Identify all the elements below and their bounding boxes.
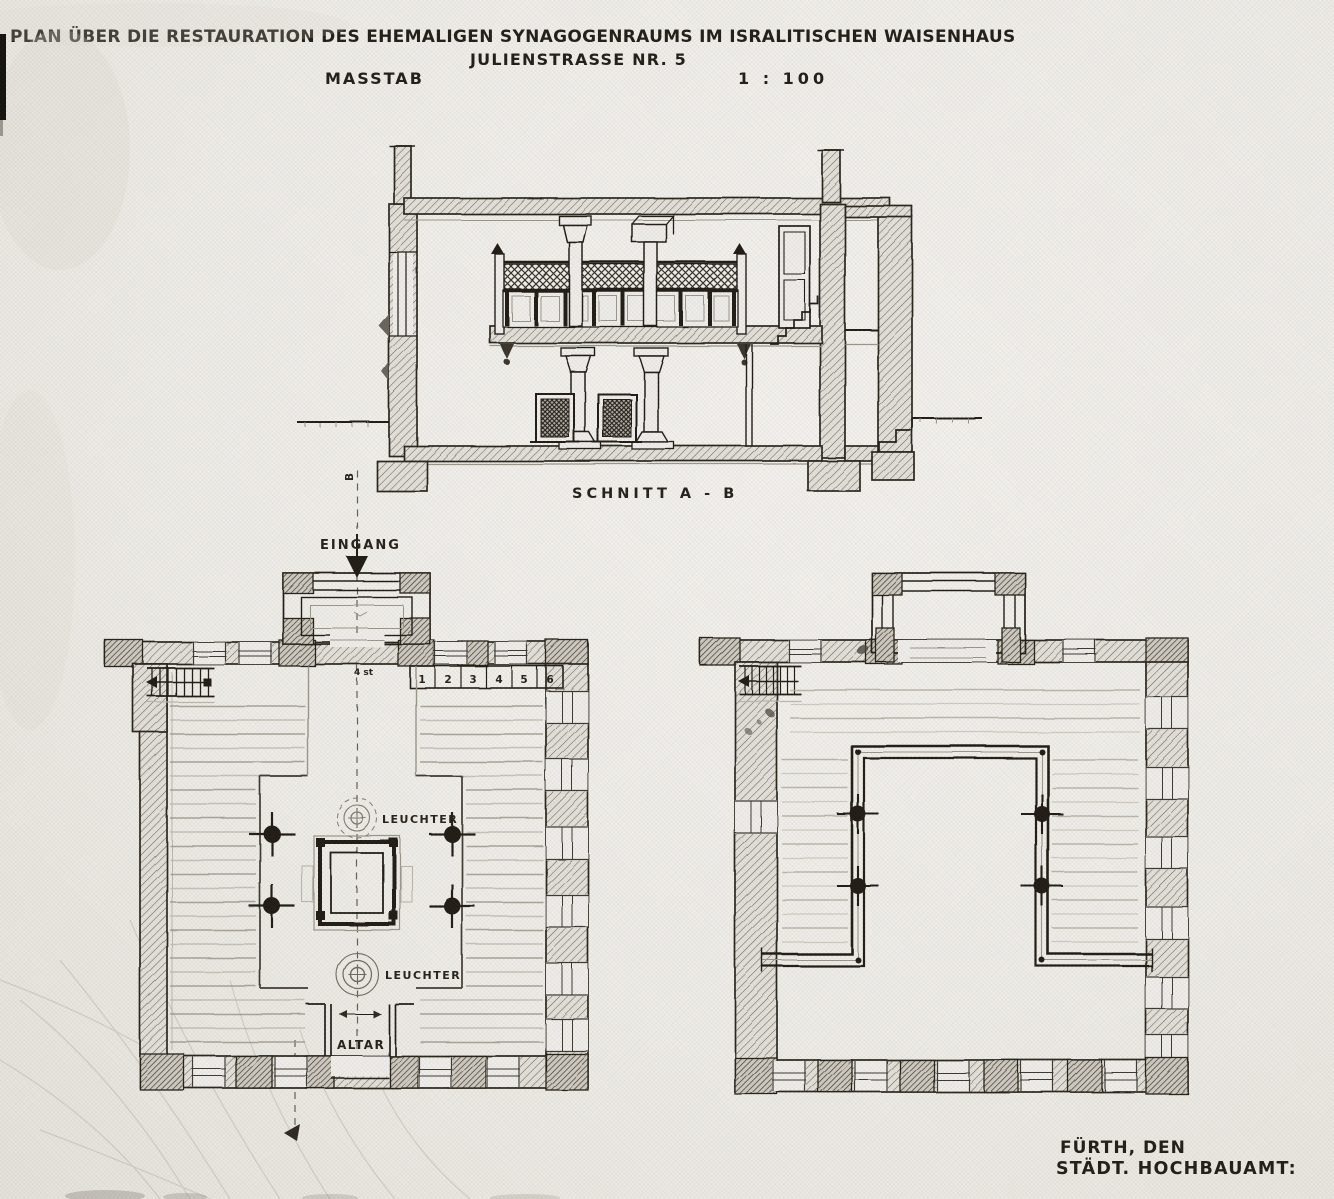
seat-number-1: 1 — [418, 674, 425, 686]
footer-office: STÄDT. HOCHBAUAMT: — [1056, 1159, 1297, 1179]
gf-columns — [249, 812, 475, 928]
gal-west-wall — [735, 662, 777, 1060]
vestibule-steps-note: 4 st — [354, 668, 374, 678]
gal-columns — [837, 794, 1063, 906]
seat-number-6: 6 — [546, 674, 553, 686]
section-drawing — [297, 146, 982, 491]
gallery-floor-plan — [700, 573, 1188, 1094]
footer-city-date: FÜRTH, DEN — [1060, 1138, 1186, 1158]
gallery-railing — [762, 746, 1152, 972]
section-foundation-left — [377, 461, 427, 491]
entrance-arrow — [346, 556, 368, 578]
gf-chandelier-upper — [337, 798, 377, 838]
section-floor-slab — [404, 446, 822, 461]
seat-number-2: 2 — [444, 674, 451, 686]
section-far-right-wall — [878, 216, 912, 452]
altar-label: ALTAR — [337, 1038, 385, 1052]
gallery-floor-beam — [490, 326, 822, 343]
gal-bench-rows — [782, 690, 1140, 928]
plan-drawing: SCHNITT A - B B — [0, 0, 1334, 1199]
gf-numbered-seats — [410, 666, 563, 688]
seat-number-5: 5 — [520, 674, 527, 686]
seat-number-3: 3 — [469, 674, 476, 686]
gallery-lattice-balustrade — [503, 264, 738, 289]
section-right-wall — [820, 204, 845, 458]
chandelier-label-upper: LEUCHTER — [382, 813, 458, 826]
section-foundation-right — [808, 461, 860, 491]
gf-chandelier-lower — [336, 953, 378, 995]
entrance-label: EINGANG — [320, 538, 401, 553]
scan-edge-mark — [0, 34, 6, 120]
section-ceiling-beam — [404, 198, 890, 214]
gf-entrance-vestibule — [283, 573, 430, 647]
axis-arrowhead — [284, 1124, 300, 1141]
paper-artifacts — [0, 3, 560, 1199]
axis-end-marker: B — [344, 473, 356, 481]
scanned-plan-page: PLAN ÜBER DIE RESTAURATION DES EHEMALIGE… — [0, 0, 1334, 1199]
chandelier-label-lower: LEUCHTER — [385, 969, 461, 982]
seat-number-4: 4 — [495, 674, 502, 686]
section-caption: SCHNITT A - B — [572, 486, 738, 502]
